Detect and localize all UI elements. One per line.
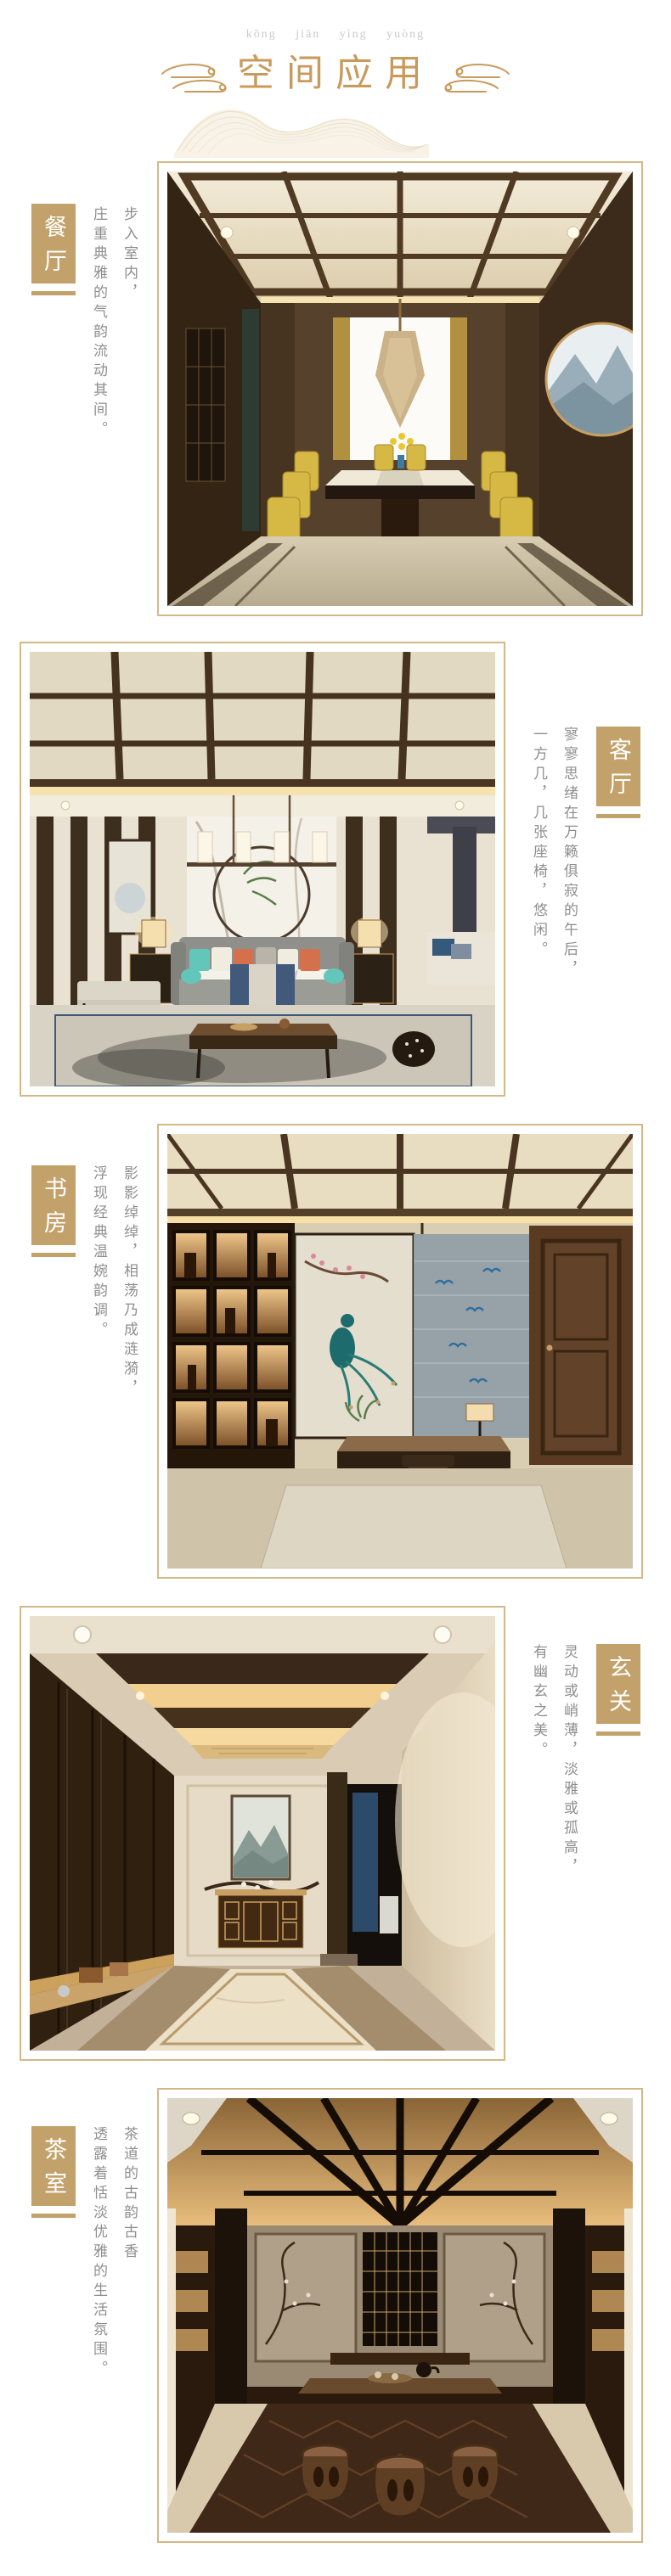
cloud-ornament-icon xyxy=(160,61,229,95)
living-description: 寥寥思绪在万籁俱寂的午后， 一方几，几张座椅，悠闲。 xyxy=(523,727,584,1019)
cloud-ornament-icon xyxy=(442,61,511,95)
living-label-badge: 客厅 xyxy=(596,727,640,818)
tea-description: 茶道的古韵古香 透露着恬淡优雅的生活氛围。 xyxy=(83,2126,144,2419)
dining-label: 餐厅 xyxy=(31,204,76,283)
dining-room-photo xyxy=(167,171,633,606)
description-line: 一方几，几张座椅，悠闲。 xyxy=(523,727,554,1019)
study-label: 书房 xyxy=(31,1165,76,1245)
label-underline xyxy=(596,1731,640,1736)
mountain-wave-icon xyxy=(174,92,429,158)
study-label-badge: 书房 xyxy=(31,1165,76,1257)
dining-label-badge: 餐厅 xyxy=(31,204,76,295)
living-room-photo-frame xyxy=(20,642,505,1097)
page-title: 空间应用 xyxy=(0,42,671,97)
tea-room-photo xyxy=(167,2098,633,2533)
section-entry: 玄关 灵动或峭薄，淡雅或孤高， 有幽玄之美。 xyxy=(0,1606,671,2081)
dining-description: 步入室内， 庄重典雅的气韵流动其间。 xyxy=(83,206,144,499)
entryway-photo xyxy=(30,1616,495,2051)
section-study: 书房 影影绰绰，相荡乃成涟漪， 浮现经典温婉韵调。 xyxy=(0,1124,671,1599)
label-underline xyxy=(31,291,76,295)
tea-label-badge: 茶室 xyxy=(31,2126,76,2218)
study-photo-frame xyxy=(157,1124,643,1579)
tea-room-photo-frame xyxy=(157,2088,643,2543)
label-underline xyxy=(596,814,640,818)
description-line: 庄重典雅的气韵流动其间。 xyxy=(83,206,114,499)
dining-room-photo-frame xyxy=(157,161,643,616)
study-photo xyxy=(167,1134,633,1569)
description-line: 寥寥思绪在万籁俱寂的午后， xyxy=(554,727,584,1019)
entryway-photo-frame xyxy=(20,1606,505,2061)
label-underline xyxy=(31,1253,76,1257)
tea-label: 茶室 xyxy=(31,2126,76,2206)
description-line: 步入室内， xyxy=(114,206,144,499)
description-line: 影影绰绰，相荡乃成涟漪， xyxy=(114,1165,144,1458)
description-line: 茶道的古韵古香 xyxy=(114,2126,144,2419)
living-label: 客厅 xyxy=(596,727,640,806)
title-pinyin: kōng jiān yìng yuòng xyxy=(0,28,671,42)
description-line: 有幽玄之美。 xyxy=(523,1644,554,1937)
description-line: 浮现经典温婉韵调。 xyxy=(83,1165,114,1458)
description-line: 透露着恬淡优雅的生活氛围。 xyxy=(83,2126,114,2419)
label-underline xyxy=(31,2214,76,2218)
section-living: 客厅 寥寥思绪在万籁俱寂的午后， 一方几，几张座椅，悠闲。 xyxy=(0,642,671,1117)
entry-description: 灵动或峭薄，淡雅或孤高， 有幽玄之美。 xyxy=(523,1644,584,1937)
section-tea: 茶室 茶道的古韵古香 透露着恬淡优雅的生活氛围。 xyxy=(0,2088,671,2563)
living-room-photo xyxy=(30,652,495,1086)
study-description: 影影绰绰，相荡乃成涟漪， 浮现经典温婉韵调。 xyxy=(83,1165,144,1458)
entry-label-badge: 玄关 xyxy=(596,1644,640,1736)
description-line: 灵动或峭薄，淡雅或孤高， xyxy=(554,1644,584,1937)
section-dining: 餐厅 步入室内， 庄重典雅的气韵流动其间。 xyxy=(0,161,671,637)
space-application-page: kōng jiān yìng yuòng 空间应用 xyxy=(0,0,671,2576)
entry-label: 玄关 xyxy=(596,1644,640,1724)
